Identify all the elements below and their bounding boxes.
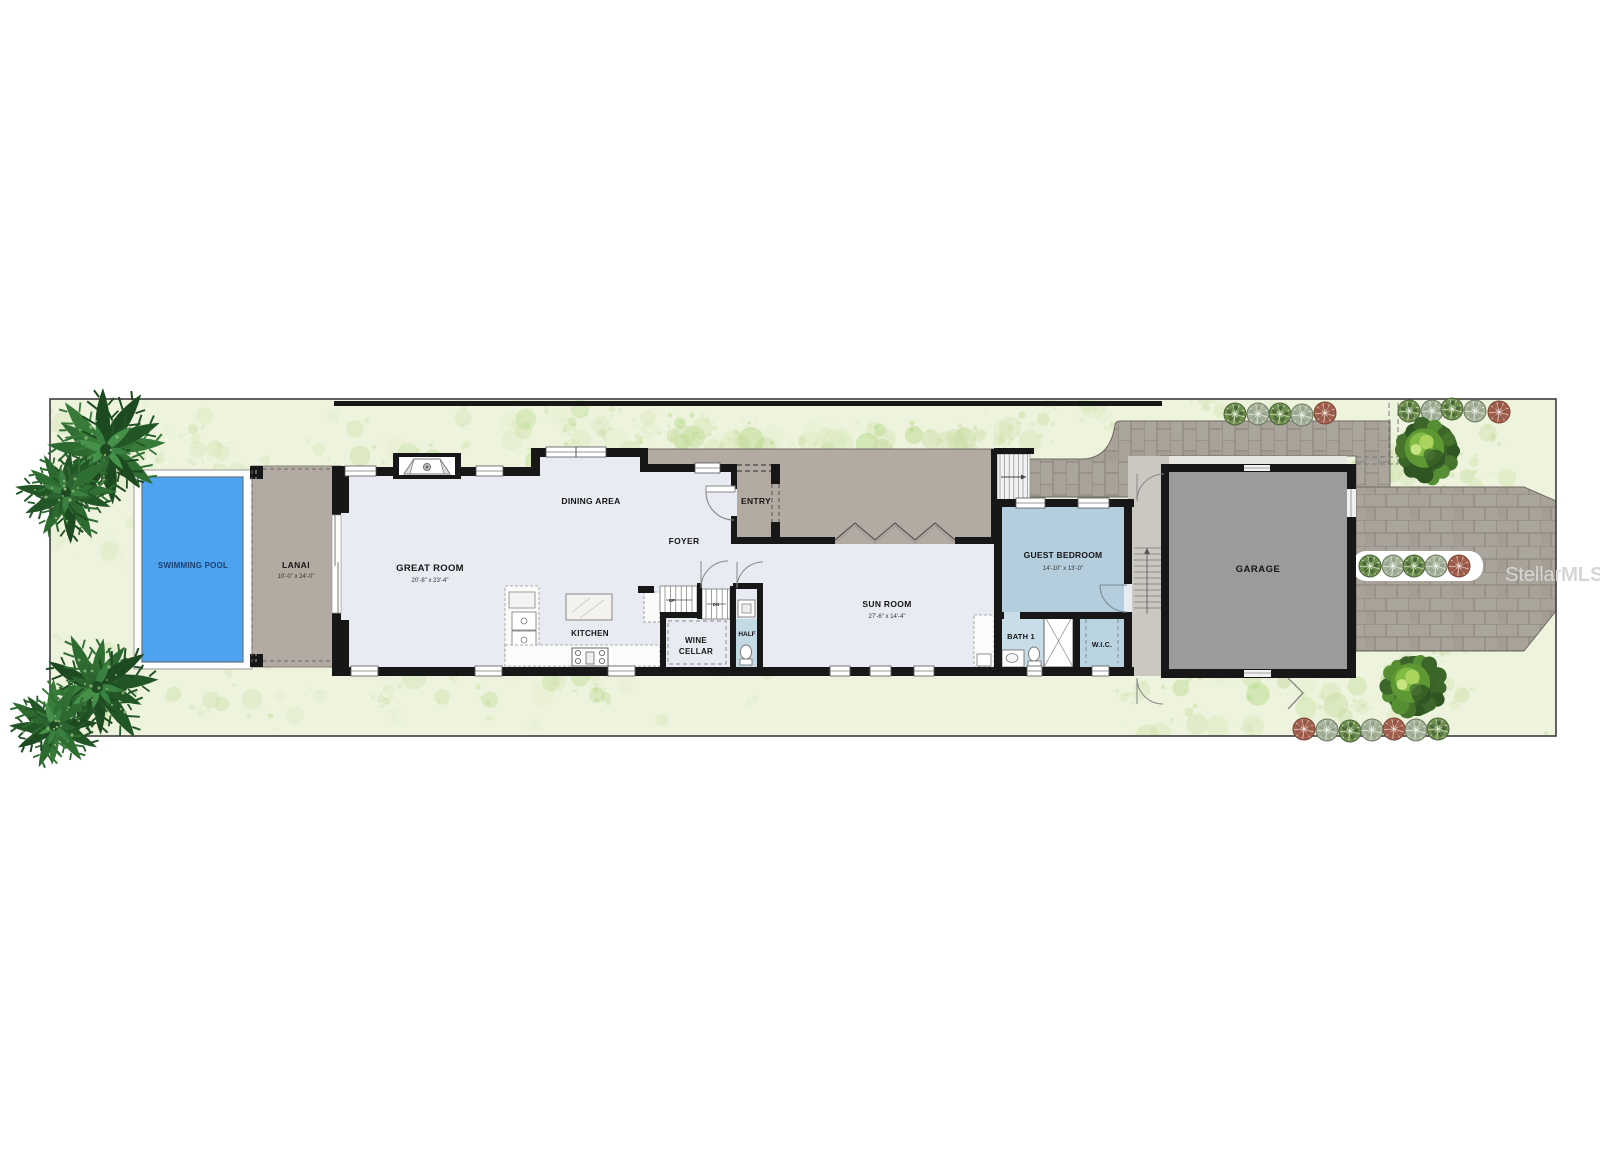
svg-text:LANAI: LANAI (282, 560, 310, 570)
svg-text:GUEST BEDROOM: GUEST BEDROOM (1024, 550, 1103, 560)
svg-text:DN: DN (713, 602, 720, 607)
svg-text:14'-10" x 13'-0": 14'-10" x 13'-0" (1043, 566, 1083, 572)
svg-text:SWIMMING POOL: SWIMMING POOL (158, 561, 228, 570)
svg-text:DINING AREA: DINING AREA (561, 496, 620, 506)
svg-text:BATH 1: BATH 1 (1007, 632, 1035, 641)
svg-text:SUN ROOM: SUN ROOM (862, 599, 911, 609)
svg-text:KITCHEN: KITCHEN (571, 629, 609, 638)
svg-text:10'-0" x 24'-0": 10'-0" x 24'-0" (278, 574, 315, 580)
svg-text:27'-6" x 14'-4": 27'-6" x 14'-4" (869, 614, 906, 620)
svg-text:CELLAR: CELLAR (679, 647, 713, 656)
svg-text:GARAGE: GARAGE (1236, 564, 1281, 575)
svg-text:W.I.C.: W.I.C. (1092, 642, 1112, 649)
svg-text:HALF: HALF (738, 631, 755, 638)
svg-text:ENTRY: ENTRY (741, 496, 771, 506)
svg-text:FOYER: FOYER (669, 536, 700, 546)
svg-text:StellarMLS: StellarMLS (1505, 563, 1600, 586)
svg-text:WINE: WINE (685, 636, 707, 645)
svg-text:UP: UP (669, 598, 675, 603)
svg-text:20'-8" x 23'-4": 20'-8" x 23'-4" (412, 578, 449, 584)
svg-text:GREAT ROOM: GREAT ROOM (396, 563, 464, 574)
